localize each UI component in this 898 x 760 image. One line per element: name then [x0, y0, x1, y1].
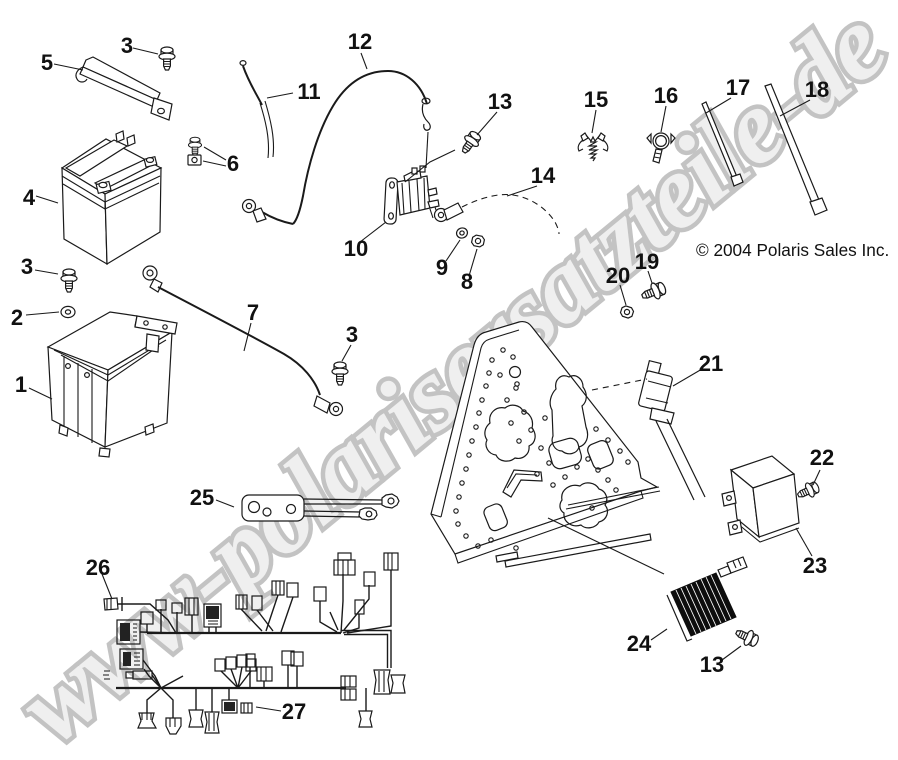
svg-text:16: 16	[654, 83, 678, 108]
svg-text:4: 4	[23, 185, 36, 210]
svg-text:26: 26	[86, 555, 110, 580]
svg-text:2: 2	[11, 305, 23, 330]
svg-text:20: 20	[606, 263, 630, 288]
svg-text:17: 17	[726, 75, 750, 100]
svg-text:9: 9	[436, 255, 448, 280]
svg-text:18: 18	[805, 77, 829, 102]
svg-text:15: 15	[584, 87, 608, 112]
svg-text:14: 14	[531, 163, 556, 188]
svg-text:3: 3	[121, 33, 133, 58]
svg-text:23: 23	[803, 553, 827, 578]
svg-text:12: 12	[348, 29, 372, 54]
svg-text:22: 22	[810, 445, 834, 470]
svg-text:1: 1	[15, 372, 27, 397]
svg-text:21: 21	[699, 351, 723, 376]
svg-text:3: 3	[21, 254, 33, 279]
svg-text:11: 11	[297, 79, 320, 104]
svg-text:7: 7	[247, 300, 259, 325]
svg-text:© 2004 Polaris Sales Inc.: © 2004 Polaris Sales Inc.	[696, 240, 889, 260]
svg-text:19: 19	[635, 249, 659, 274]
svg-text:13: 13	[488, 89, 512, 114]
svg-text:8: 8	[461, 269, 473, 294]
svg-text:10: 10	[344, 236, 368, 261]
svg-text:27: 27	[282, 699, 306, 724]
svg-text:25: 25	[190, 485, 214, 510]
svg-text:3: 3	[346, 322, 358, 347]
svg-text:6: 6	[227, 151, 239, 176]
svg-text:24: 24	[627, 631, 652, 656]
svg-text:13: 13	[700, 652, 724, 677]
svg-text:5: 5	[41, 50, 53, 75]
